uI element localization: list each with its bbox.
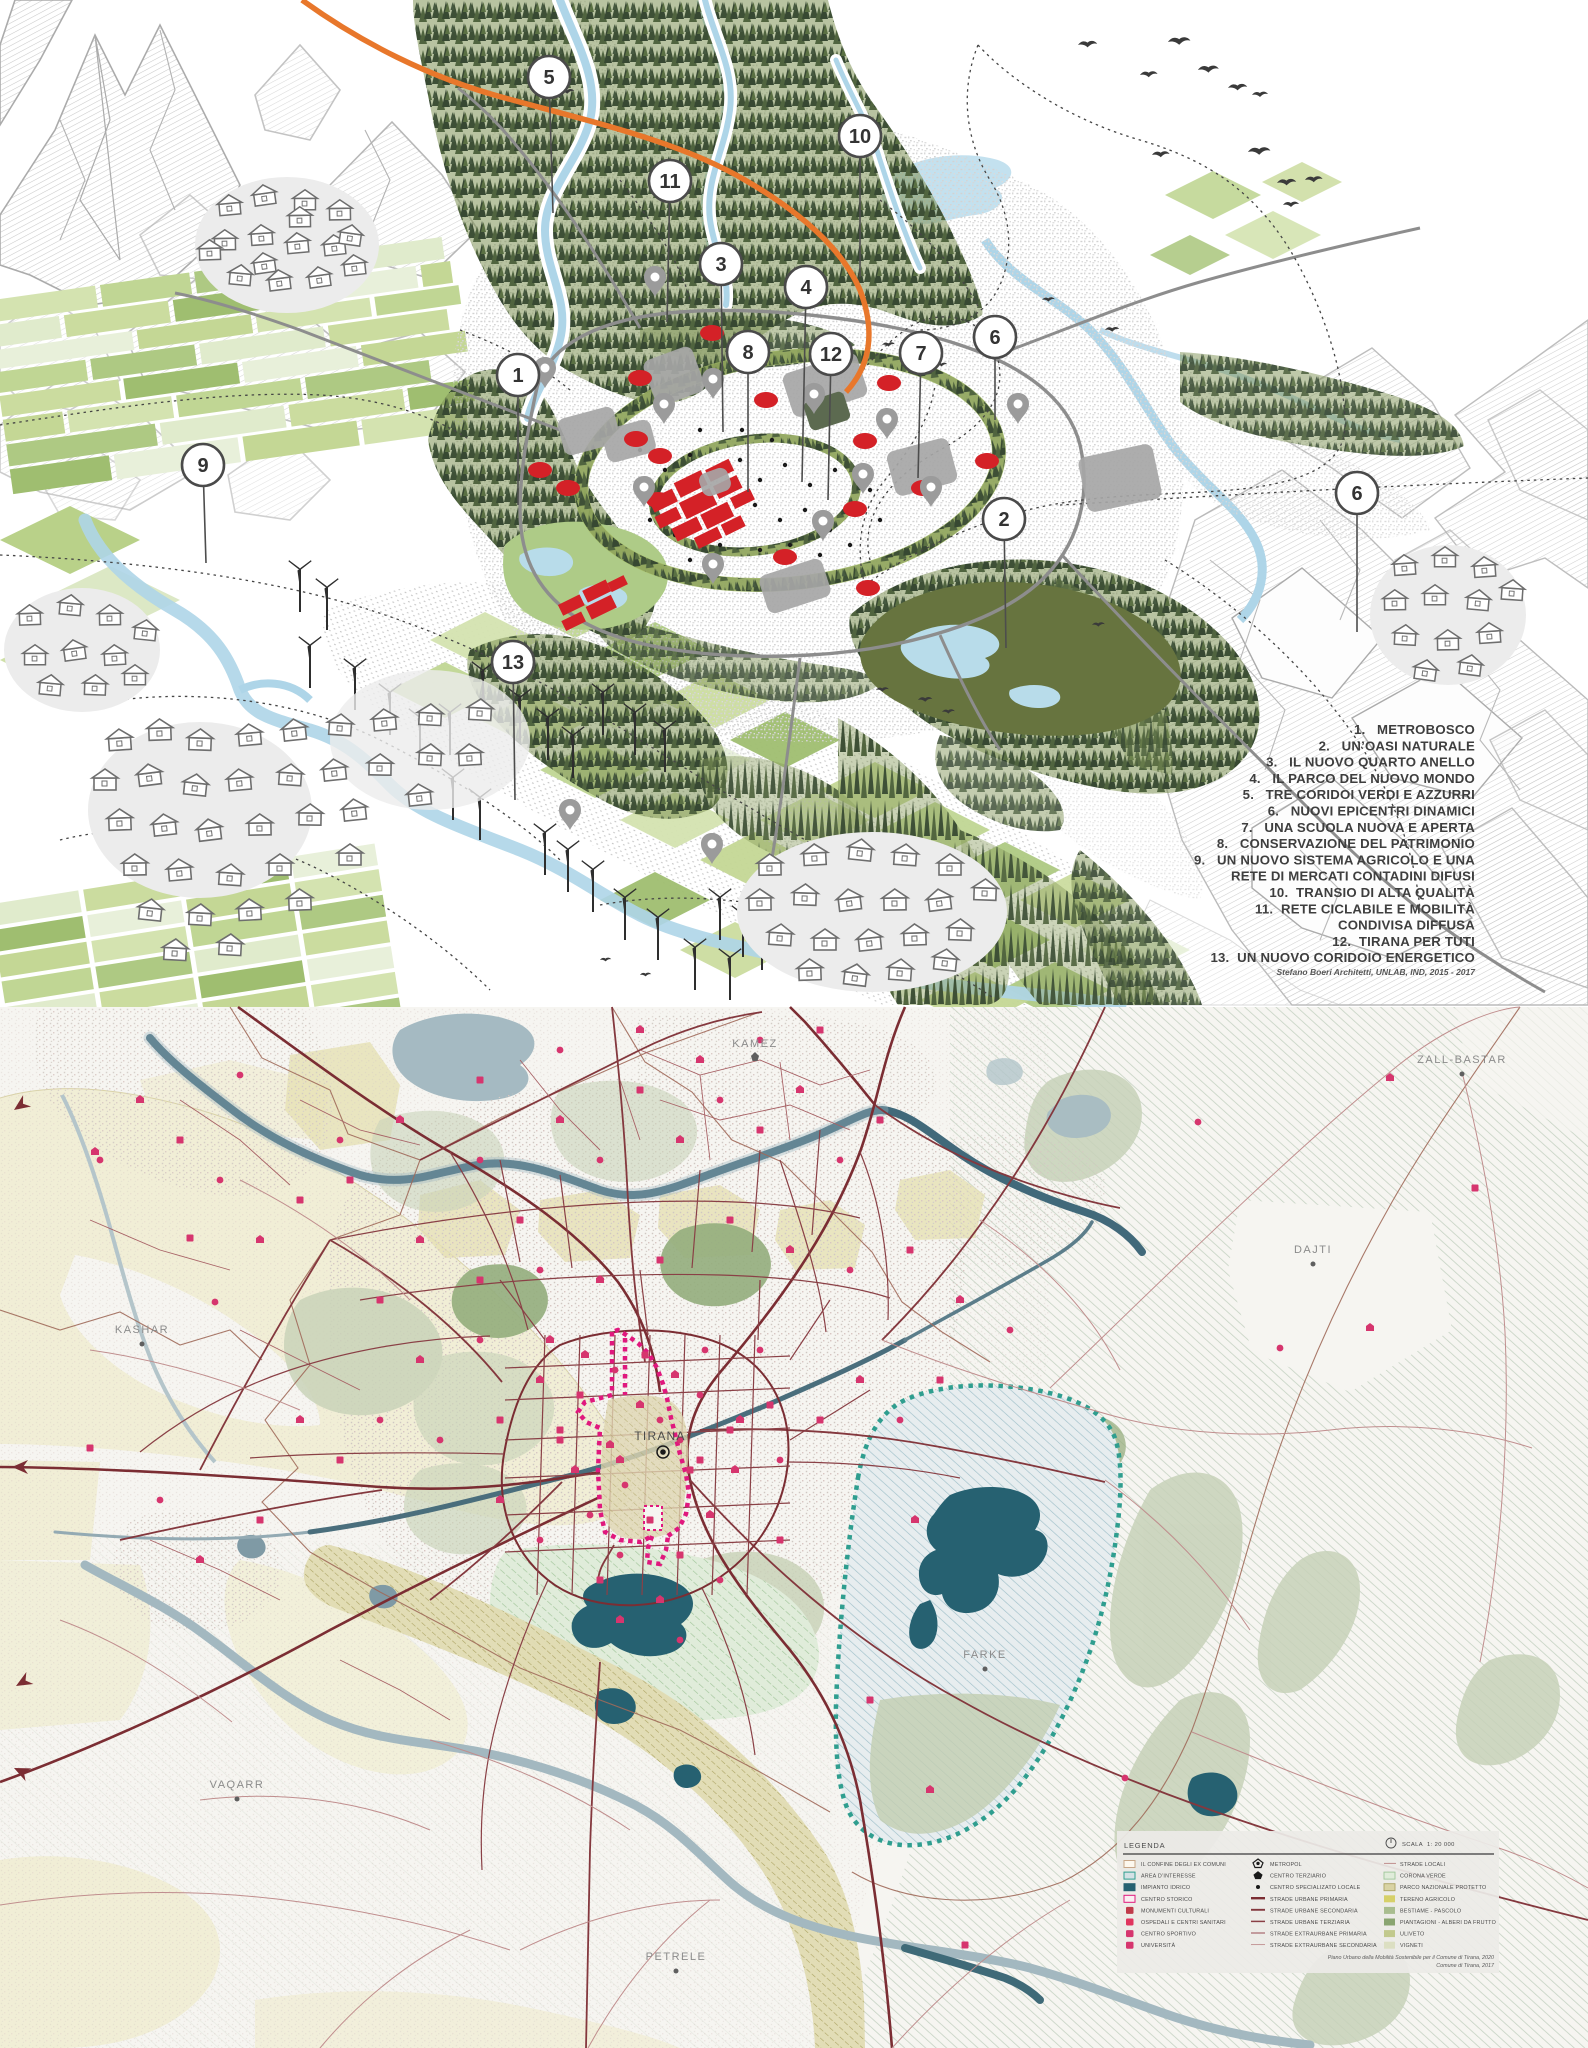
svg-text:STRADE EXTRAURBANE PRIMARIA: STRADE EXTRAURBANE PRIMARIA [1270,1932,1367,1938]
svg-text:10: 10 [849,126,871,148]
svg-text:RETE DI MERCATI CONTADINI DIFU: RETE DI MERCATI CONTADINI DIFUSI [1231,869,1475,884]
svg-text:VAQARR: VAQARR [210,1779,265,1791]
svg-text:PARCO NAZIONALE PROTETTO: PARCO NAZIONALE PROTETTO [1400,1885,1486,1891]
svg-text:12: 12 [820,344,842,366]
svg-text:11: 11 [659,171,680,193]
svg-text:LEGENDA: LEGENDA [1124,1841,1165,1850]
svg-text:6: 6 [1351,483,1362,505]
svg-text:DAJTI: DAJTI [1294,1244,1332,1256]
svg-text:MONUMENTI CULTURALI: MONUMENTI CULTURALI [1141,1908,1209,1914]
svg-text:6. NUOVI EPICENTRI DINAMICI: 6. NUOVI EPICENTRI DINAMICI [1268,804,1475,819]
svg-text:1. METROBOSCO: 1. METROBOSCO [1354,722,1475,737]
svg-text:IL CONFINE DEGLI EX COMUNI: IL CONFINE DEGLI EX COMUNI [1141,1862,1226,1868]
svg-text:CENTRO SPECIALIZATO LOCALE: CENTRO SPECIALIZATO LOCALE [1270,1885,1361,1891]
svg-text:ZALL-BASTAR: ZALL-BASTAR [1417,1054,1507,1066]
svg-text:CENTRO TERZIARIO: CENTRO TERZIARIO [1270,1874,1326,1880]
svg-text:STRADE LOCALI: STRADE LOCALI [1400,1862,1445,1868]
svg-text:BESTIAME - PASCOLO: BESTIAME - PASCOLO [1400,1908,1461,1914]
svg-text:PIANTAGIONI - ALBERI DA FRUTTO: PIANTAGIONI - ALBERI DA FRUTTO [1400,1920,1496,1926]
svg-text:STRADE EXTRAURBANE SECONDARIA: STRADE EXTRAURBANE SECONDARIA [1270,1943,1377,1949]
svg-text:STRADE URBANE PRIMARIA: STRADE URBANE PRIMARIA [1270,1897,1348,1903]
svg-text:6: 6 [989,327,1000,349]
svg-text:TIRANA: TIRANA [634,1429,685,1443]
svg-text:METROPOL: METROPOL [1270,1862,1302,1868]
svg-text:13: 13 [502,652,524,674]
svg-text:ULIVETO: ULIVETO [1400,1932,1424,1938]
svg-text:STRADE URBANE SECONDARIA: STRADE URBANE SECONDARIA [1270,1908,1358,1914]
svg-text:KASHAR: KASHAR [115,1324,169,1336]
svg-text:4: 4 [800,277,812,299]
svg-text:2: 2 [998,509,1009,531]
svg-text:9. UN NUOVO SISTEMA AGRICOLO: 9. UN NUOVO SISTEMA AGRICOLO E UNA [1194,852,1475,867]
svg-text:9: 9 [197,455,208,477]
svg-text:1: 1 [512,365,523,387]
svg-text:CONDIVISA DIFFUSA: CONDIVISA DIFFUSA [1338,918,1475,933]
svg-text:2. UN’OASI NATURALE: 2. UN’OASI NATURALE [1319,738,1475,753]
svg-text:12. TIRANA PER TUTI: 12. TIRANA PER TUTI [1332,934,1475,949]
svg-text:AREA D’INTERESSE: AREA D’INTERESSE [1141,1874,1196,1880]
svg-text:Comune di Tirana, 2017: Comune di Tirana, 2017 [1436,1963,1495,1969]
svg-text:SCALA 1: 20 000: SCALA 1: 20 000 [1402,1842,1455,1848]
svg-text:8: 8 [742,342,753,364]
svg-text:FARKE: FARKE [963,1649,1007,1661]
svg-text:4. IL PARCO DEL NUOVO MONDO: 4. IL PARCO DEL NUOVO MONDO [1249,771,1475,786]
svg-text:Stefano Boeri Architetti, UNLA: Stefano Boeri Architetti, UNLAB, IND, 20… [1276,967,1476,977]
svg-text:3. IL NUOVO QUARTO ANELLO: 3. IL NUOVO QUARTO ANELLO [1266,755,1475,770]
svg-text:5. TRE CORIDOI VERDI E AZZUR: 5. TRE CORIDOI VERDI E AZZURRI [1243,787,1475,802]
svg-text:VIGNETI: VIGNETI [1400,1943,1423,1949]
svg-text:Piano Urbano della Mobilità So: Piano Urbano della Mobilità Sostenibile … [1328,1955,1494,1961]
svg-text:7. UNA SCUOLA NUOVA E APERTA: 7. UNA SCUOLA NUOVA E APERTA [1241,820,1475,835]
svg-text:KAMEZ: KAMEZ [732,1038,777,1050]
svg-text:11. RETE CICLABILE E MOBILITÀ: 11. RETE CICLABILE E MOBILITÀ [1255,901,1475,916]
svg-text:CORONA VERDE: CORONA VERDE [1400,1874,1446,1880]
svg-text:STRADE URBANE TERZIARIA: STRADE URBANE TERZIARIA [1270,1920,1350,1926]
svg-text:CENTRO STORICO: CENTRO STORICO [1141,1897,1193,1903]
svg-text:8. CONSERVAZIONE DEL PATRIMO: 8. CONSERVAZIONE DEL PATRIMONIO [1217,836,1475,851]
svg-text:OSPEDALI E CENTRI SANITARI: OSPEDALI E CENTRI SANITARI [1141,1920,1226,1926]
svg-text:5: 5 [543,67,554,89]
svg-text:13. UN NUOVO CORIDOIO ENERGET: 13. UN NUOVO CORIDOIO ENERGETICO [1210,950,1475,965]
svg-text:7: 7 [915,343,926,365]
svg-text:UNIVERSITÀ: UNIVERSITÀ [1141,1942,1176,1949]
svg-text:TERENO AGRICOLO: TERENO AGRICOLO [1400,1897,1455,1903]
svg-text:10. TRANSIO DI ALTA QUALITÀ: 10. TRANSIO DI ALTA QUALITÀ [1269,885,1475,900]
svg-text:3: 3 [715,254,726,276]
svg-text:PETRELE: PETRELE [646,1951,707,1963]
svg-text:IMPIANTO IDRICO: IMPIANTO IDRICO [1141,1885,1190,1891]
svg-text:CENTRO SPORTIVO: CENTRO SPORTIVO [1141,1932,1196,1938]
